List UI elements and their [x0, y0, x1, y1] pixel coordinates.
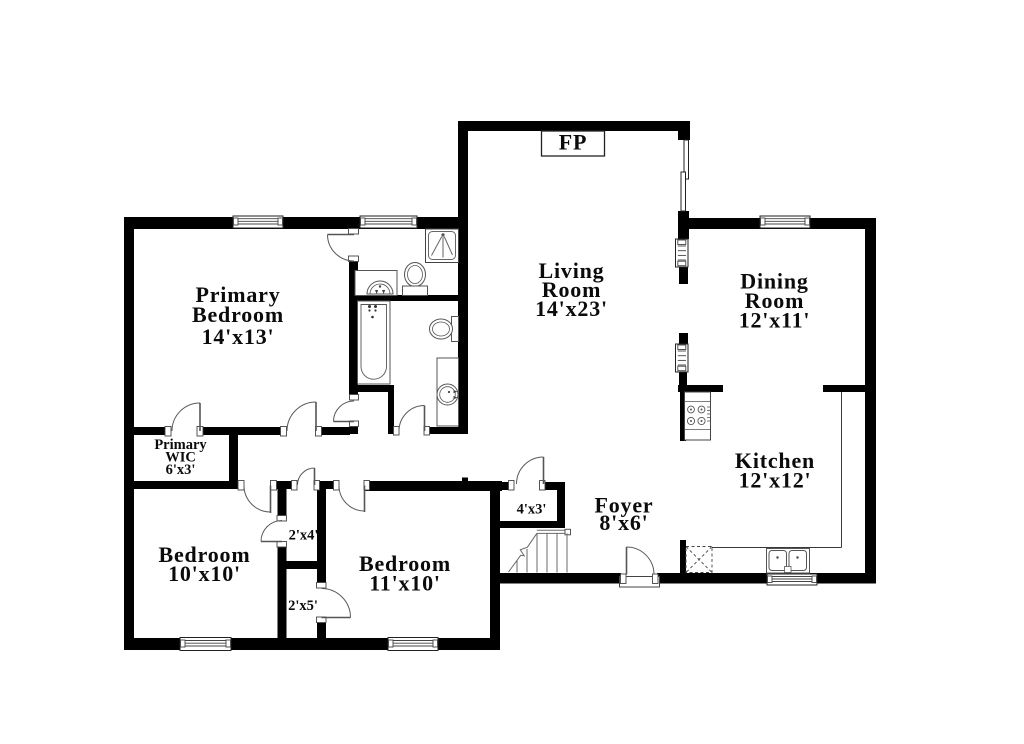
svg-text:2'x5': 2'x5' [288, 598, 318, 614]
svg-text:12'x12': 12'x12' [739, 468, 812, 493]
svg-text:12'x11': 12'x11' [739, 308, 811, 333]
svg-text:8'x6': 8'x6' [599, 510, 648, 535]
svg-text:14'x23': 14'x23' [535, 296, 608, 321]
svg-text:14'x13': 14'x13' [202, 324, 275, 349]
svg-text:4'x3': 4'x3' [517, 502, 547, 518]
svg-text:FP: FP [559, 130, 587, 155]
svg-text:2'x4': 2'x4' [289, 528, 319, 544]
svg-text:6'x3': 6'x3' [166, 462, 196, 478]
svg-text:11'x10': 11'x10' [369, 571, 441, 596]
svg-text:10'x10': 10'x10' [168, 561, 241, 586]
